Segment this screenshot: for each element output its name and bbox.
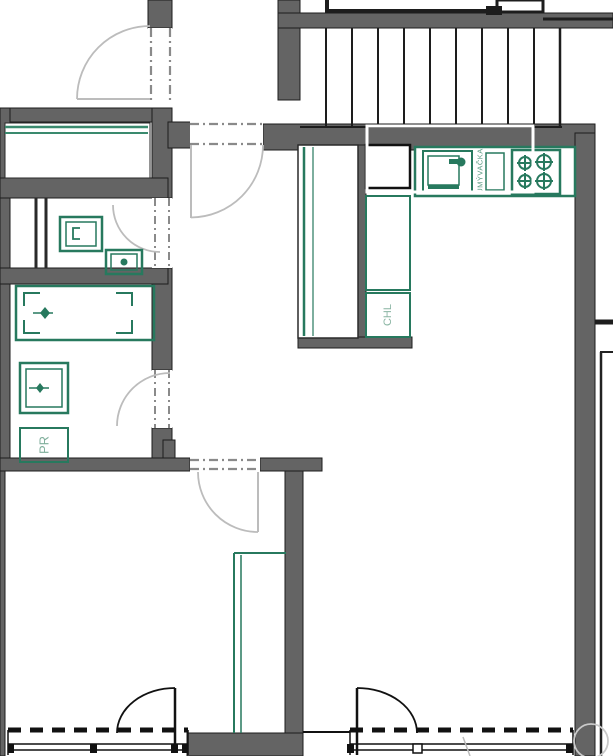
top-fixture-tab [486, 6, 502, 15]
wall-partition-foot [163, 440, 175, 458]
kitchen-worktop: UMÝVAČKA [415, 147, 575, 196]
entry-closet-outline [5, 123, 150, 178]
tall-cabinet [366, 145, 410, 188]
wall-mid-column [285, 471, 303, 756]
wall-door3-right-band [260, 458, 322, 471]
wall-left-outer-lower [0, 468, 5, 756]
top-fixture-outline [497, 0, 543, 12]
wall-top-left-stub [148, 0, 172, 28]
door3-opening [190, 456, 260, 473]
kitchen-counter-column [298, 145, 358, 338]
toilet [106, 250, 142, 274]
wall-bottom-band [187, 733, 303, 756]
wall-wc-top-band [0, 178, 168, 198]
floor-plan-drawing: PR CHL [0, 0, 613, 756]
wall-hall-seg [168, 122, 192, 148]
dishwasher-label: UMÝVAČKA [476, 148, 485, 194]
fridge-label: CHL [382, 304, 394, 326]
floor-plan: PR CHL [0, 0, 613, 756]
wall-right-outer [575, 133, 595, 756]
wall-bath-bottom-band [0, 458, 190, 471]
wall-closet-top-band [0, 108, 152, 122]
washing-machine-label: PR [37, 436, 52, 454]
